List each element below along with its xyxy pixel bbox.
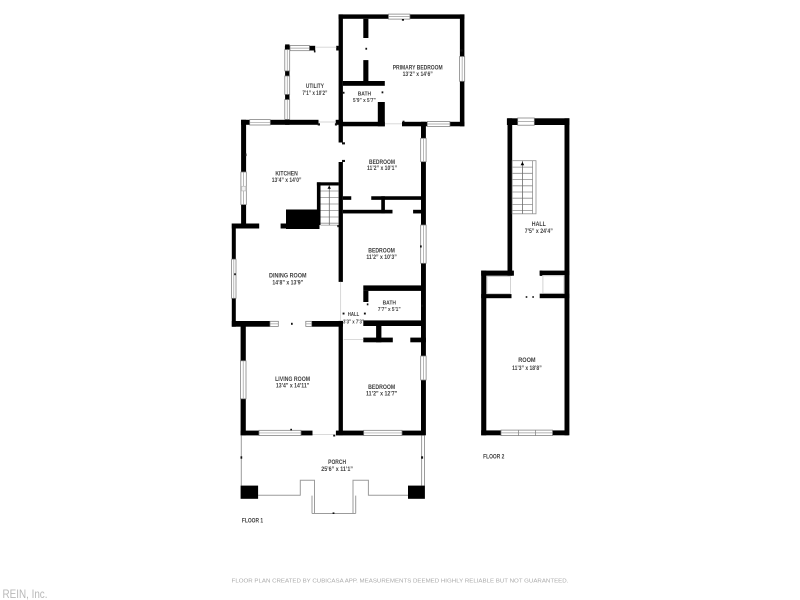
svg-text:7’1” x 10’2”: 7’1” x 10’2”	[302, 90, 327, 97]
svg-text:3’3” x 7’3”: 3’3” x 7’3”	[343, 319, 364, 325]
svg-text:25’6” x 11’1”: 25’6” x 11’1”	[321, 466, 353, 473]
svg-text:11’2” x 12’7”: 11’2” x 12’7”	[366, 391, 397, 398]
svg-text:13’2” x 14’6”: 13’2” x 14’6”	[403, 71, 433, 78]
svg-text:7’7” x 5’1”: 7’7” x 5’1”	[378, 307, 401, 313]
svg-text:13’4” x 14’11”: 13’4” x 14’11”	[276, 383, 309, 390]
svg-text:FLOOR 2: FLOOR 2	[483, 453, 505, 460]
svg-text:HALL: HALL	[348, 312, 360, 318]
svg-text:REIN, Inc.: REIN, Inc.	[3, 587, 48, 600]
svg-text:11’3” x 18’8”: 11’3” x 18’8”	[512, 365, 542, 372]
svg-text:7’5” x 24’4”: 7’5” x 24’4”	[525, 228, 553, 235]
svg-text:11’2” x 10’3”: 11’2” x 10’3”	[366, 254, 397, 261]
svg-text:14’8” x 13’9”: 14’8” x 13’9”	[272, 279, 303, 286]
svg-text:BATH: BATH	[383, 300, 396, 306]
svg-text:BATH: BATH	[358, 92, 371, 98]
svg-text:13’4” x 14’0”: 13’4” x 14’0”	[272, 177, 302, 184]
svg-text:5’9” x 5’7”: 5’9” x 5’7”	[353, 98, 376, 104]
svg-text:11’2” x 10’1”: 11’2” x 10’1”	[367, 165, 397, 172]
svg-text:FLOOR 1: FLOOR 1	[242, 518, 264, 525]
svg-text:HALL: HALL	[532, 221, 546, 228]
svg-text:FLOOR PLAN CREATED BY CUBICASA: FLOOR PLAN CREATED BY CUBICASA APP. MEAS…	[232, 579, 569, 585]
svg-text:ROOM: ROOM	[518, 357, 535, 364]
